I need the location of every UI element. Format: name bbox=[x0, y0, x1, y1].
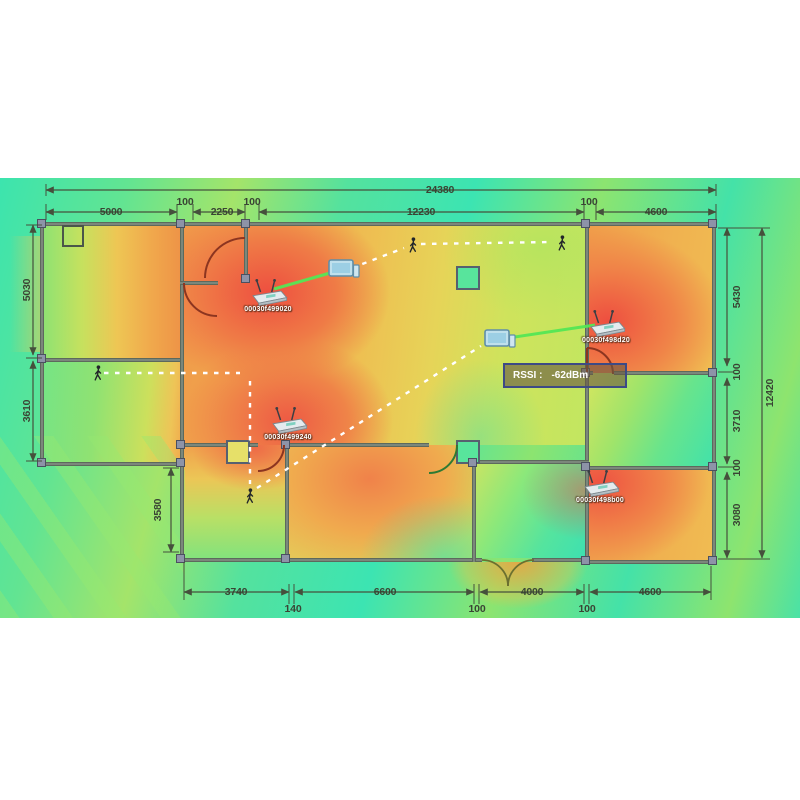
dim-label: 3710 bbox=[732, 410, 743, 433]
double-door-arc[interactable] bbox=[482, 560, 508, 586]
wifi-router-icon bbox=[579, 469, 621, 497]
walker-icon[interactable] bbox=[559, 235, 564, 250]
laptop-icon[interactable] bbox=[328, 258, 360, 285]
dim-label: 3740 bbox=[225, 587, 248, 598]
laptop-icon[interactable] bbox=[484, 328, 516, 355]
ap-mac-label: 00030f499020 bbox=[244, 306, 292, 313]
dim-label: 4600 bbox=[639, 587, 662, 598]
dim-label: 12420 bbox=[765, 379, 776, 407]
walker-icon[interactable] bbox=[95, 365, 100, 380]
dim-label: 24380 bbox=[426, 185, 454, 196]
dim-label: 100 bbox=[244, 197, 261, 208]
dim-label: 100 bbox=[177, 197, 194, 208]
coverage-heatmap: 00030f499020 00030f498d20 00030f499240 0… bbox=[0, 178, 800, 618]
wifi-router-icon bbox=[247, 278, 289, 306]
dim-label: 5000 bbox=[100, 207, 123, 218]
door-arc[interactable] bbox=[184, 283, 217, 316]
ap-mac-label: 00030f499240 bbox=[264, 434, 312, 441]
dim-label: 100 bbox=[579, 604, 596, 615]
dimension-ticks bbox=[26, 184, 770, 604]
access-point[interactable]: 00030f499020 bbox=[228, 278, 308, 313]
ap-mac-label: 00030f498d20 bbox=[582, 337, 630, 344]
rssi-label: RSSI : bbox=[513, 370, 542, 381]
dim-label: 5030 bbox=[22, 279, 33, 302]
wifi-heatmap-canvas: 00030f499020 00030f498d20 00030f499240 0… bbox=[0, 0, 800, 800]
dim-label: 12230 bbox=[407, 207, 435, 218]
rssi-value: -62dBm bbox=[551, 370, 588, 381]
dim-label: 3580 bbox=[153, 499, 164, 522]
access-point[interactable]: 00030f499240 bbox=[248, 406, 328, 441]
dim-label: 140 bbox=[285, 604, 302, 615]
dim-label: 5430 bbox=[732, 286, 743, 309]
dim-label: 6600 bbox=[374, 587, 397, 598]
dim-label: 4000 bbox=[521, 587, 544, 598]
ap-mac-label: 00030f498b00 bbox=[576, 497, 624, 504]
dim-label: 4600 bbox=[645, 207, 668, 218]
rssi-tooltip: RSSI : -62dBm bbox=[503, 363, 627, 388]
dim-label: 3610 bbox=[22, 400, 33, 423]
signal-link-lines bbox=[274, 271, 595, 339]
walker-icon[interactable] bbox=[410, 237, 415, 252]
door-arc[interactable] bbox=[205, 238, 245, 278]
dim-label: 3080 bbox=[732, 504, 743, 527]
access-point[interactable]: 00030f498d20 bbox=[566, 309, 646, 344]
wifi-router-icon bbox=[585, 309, 627, 337]
plan-linework bbox=[0, 178, 800, 618]
wifi-router-icon bbox=[267, 406, 309, 434]
double-door-arc[interactable] bbox=[508, 560, 534, 586]
dim-label: 100 bbox=[732, 364, 743, 381]
dim-label: 100 bbox=[581, 197, 598, 208]
door-arc[interactable] bbox=[258, 445, 284, 471]
dim-label: 100 bbox=[469, 604, 486, 615]
access-point[interactable]: 00030f498b00 bbox=[560, 469, 640, 504]
walker-icon[interactable] bbox=[247, 488, 252, 503]
dim-label: 2250 bbox=[211, 207, 234, 218]
door-arc[interactable] bbox=[429, 445, 457, 473]
dim-label: 100 bbox=[732, 460, 743, 477]
dimension-lines bbox=[33, 190, 762, 592]
